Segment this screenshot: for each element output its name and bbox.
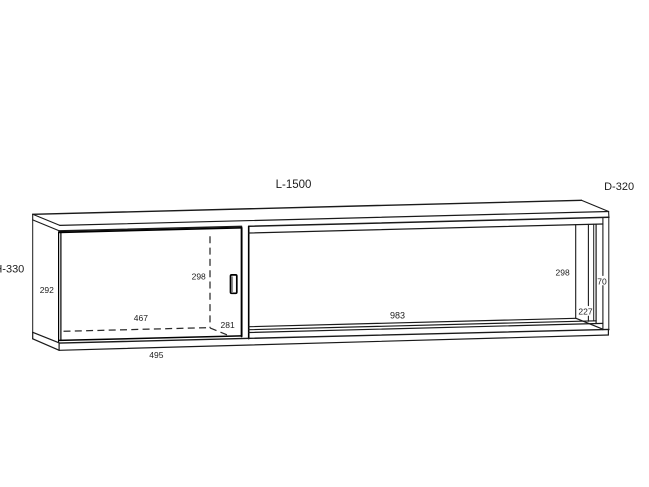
- svg-text:467: 467: [134, 313, 148, 323]
- svg-text:298: 298: [556, 268, 570, 278]
- svg-text:227: 227: [578, 306, 592, 316]
- svg-text:H-330: H-330: [0, 264, 24, 276]
- svg-text:495: 495: [149, 350, 163, 360]
- svg-text:L-1500: L-1500: [276, 179, 312, 191]
- svg-text:281: 281: [221, 320, 235, 330]
- svg-text:298: 298: [192, 271, 206, 281]
- svg-text:983: 983: [390, 311, 405, 321]
- svg-text:D-320: D-320: [604, 181, 634, 193]
- svg-text:292: 292: [40, 285, 54, 295]
- svg-text:70: 70: [597, 276, 607, 286]
